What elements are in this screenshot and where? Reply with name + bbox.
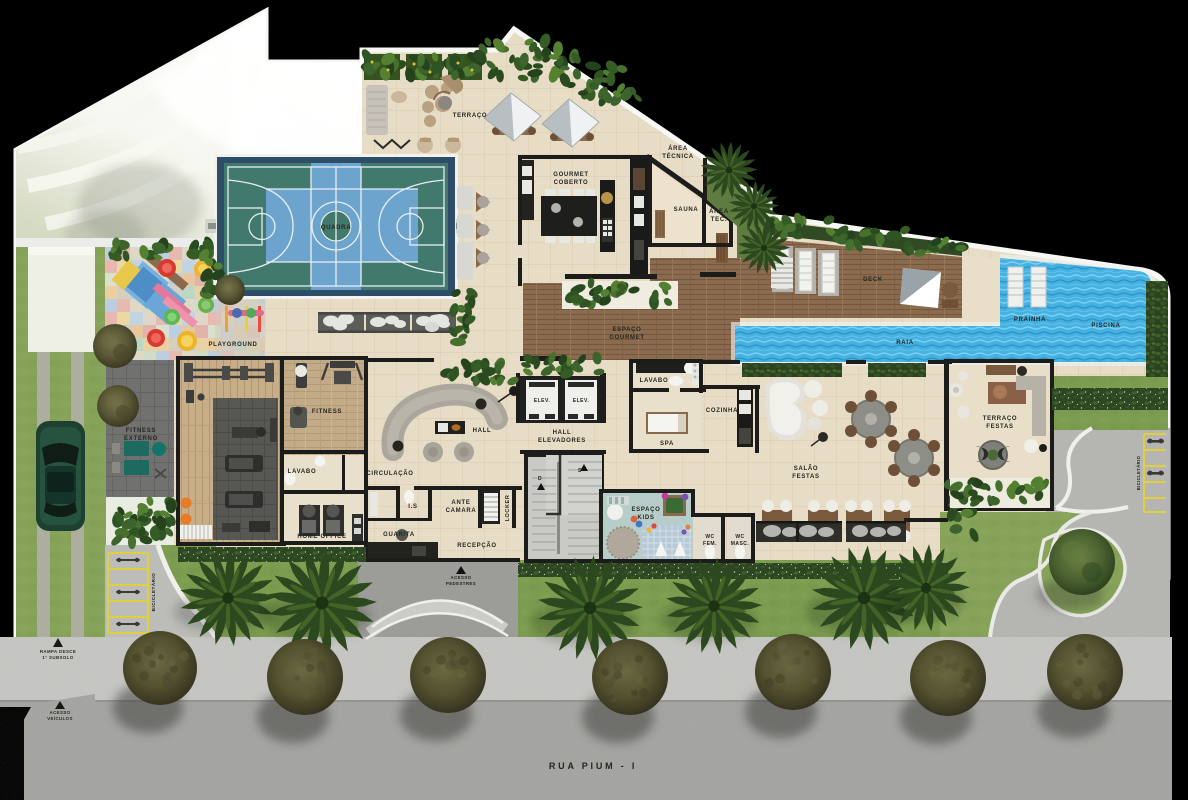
svg-text:EXTERNO: EXTERNO	[124, 436, 158, 442]
svg-text:BICICLETÁRIO: BICICLETÁRIO	[1136, 455, 1141, 490]
svg-text:COZINHA: COZINHA	[706, 408, 738, 414]
svg-text:ÁREA: ÁREA	[709, 208, 729, 215]
svg-text:FESTAS: FESTAS	[792, 474, 819, 480]
svg-text:RUA PIUM - I: RUA PIUM - I	[549, 761, 637, 771]
svg-text:ESPAÇO: ESPAÇO	[612, 327, 641, 333]
svg-text:D: D	[538, 476, 542, 482]
svg-text:ÁREA: ÁREA	[668, 145, 688, 152]
svg-text:QUADRA: QUADRA	[321, 225, 352, 231]
svg-text:PRAINHA: PRAINHA	[1014, 317, 1046, 323]
svg-text:I.S: I.S	[408, 504, 417, 510]
svg-text:ELEV.: ELEV.	[534, 398, 551, 404]
svg-text:CIRCULAÇÃO: CIRCULAÇÃO	[366, 470, 413, 477]
svg-text:LAVABO: LAVABO	[288, 469, 317, 475]
svg-text:LAVABO: LAVABO	[640, 378, 669, 384]
svg-text:SALÃO: SALÃO	[794, 465, 819, 472]
svg-text:FESTAS: FESTAS	[986, 424, 1013, 430]
svg-text:COBERTO: COBERTO	[554, 180, 589, 186]
svg-text:WC: WC	[735, 534, 744, 540]
svg-text:ELEV.: ELEV.	[573, 398, 590, 404]
svg-text:SPA: SPA	[660, 441, 674, 447]
svg-text:LOCKER: LOCKER	[505, 495, 511, 522]
svg-text:RAIA: RAIA	[896, 340, 913, 346]
svg-text:PEDESTRES: PEDESTRES	[446, 581, 476, 586]
svg-text:HALL: HALL	[473, 428, 492, 434]
svg-text:CAMARA: CAMARA	[446, 508, 477, 514]
svg-text:RECEPÇÃO: RECEPÇÃO	[457, 542, 497, 549]
svg-text:BICICLETÁRIO: BICICLETÁRIO	[150, 573, 156, 612]
svg-text:ELEVADORES: ELEVADORES	[538, 438, 586, 444]
svg-text:GUARITA: GUARITA	[383, 532, 415, 538]
svg-text:HALL: HALL	[553, 430, 572, 436]
svg-text:KIDS: KIDS	[637, 515, 654, 521]
svg-text:MASC.: MASC.	[731, 541, 750, 547]
svg-text:FITNESS: FITNESS	[126, 428, 156, 434]
svg-text:TERRAÇO: TERRAÇO	[983, 416, 1018, 422]
svg-text:FITNESS: FITNESS	[312, 409, 342, 415]
svg-text:GOURMET: GOURMET	[553, 172, 589, 178]
svg-text:HOME OFFICE: HOME OFFICE	[297, 534, 346, 540]
svg-text:TEC.: TEC.	[711, 217, 727, 223]
svg-text:ANTE: ANTE	[451, 500, 470, 506]
svg-text:TÉCNICA: TÉCNICA	[662, 152, 694, 160]
svg-text:ESPAÇO: ESPAÇO	[631, 507, 660, 513]
svg-text:WC: WC	[705, 534, 714, 540]
svg-text:FEM.: FEM.	[703, 541, 717, 547]
svg-text:PLAYGROUND: PLAYGROUND	[208, 342, 257, 348]
svg-text:GOURMET: GOURMET	[609, 335, 645, 341]
svg-text:ACESSO: ACESSO	[451, 575, 472, 580]
svg-text:SAUNA: SAUNA	[674, 207, 699, 213]
svg-text:DECK: DECK	[863, 277, 883, 283]
svg-text:TERRAÇO: TERRAÇO	[453, 113, 488, 119]
svg-text:PISCINA: PISCINA	[1091, 323, 1120, 329]
